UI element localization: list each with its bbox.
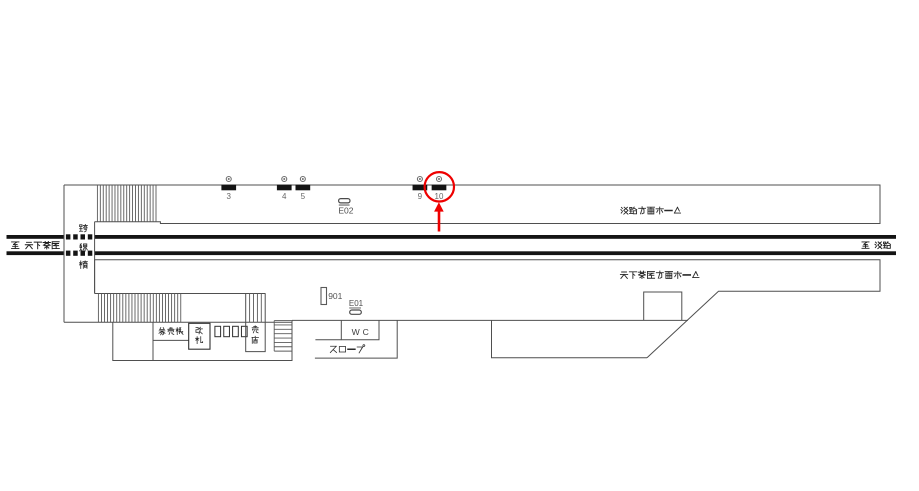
svg-text:WC: WC <box>352 327 372 337</box>
svg-text:E01: E01 <box>349 299 364 308</box>
svg-text:4: 4 <box>282 192 287 201</box>
svg-text:9: 9 <box>418 192 423 201</box>
svg-text:10: 10 <box>435 192 444 201</box>
svg-text:3: 3 <box>227 192 232 201</box>
svg-text:901: 901 <box>328 291 342 301</box>
svg-text:E02: E02 <box>338 205 353 215</box>
svg-text:5: 5 <box>301 192 306 201</box>
